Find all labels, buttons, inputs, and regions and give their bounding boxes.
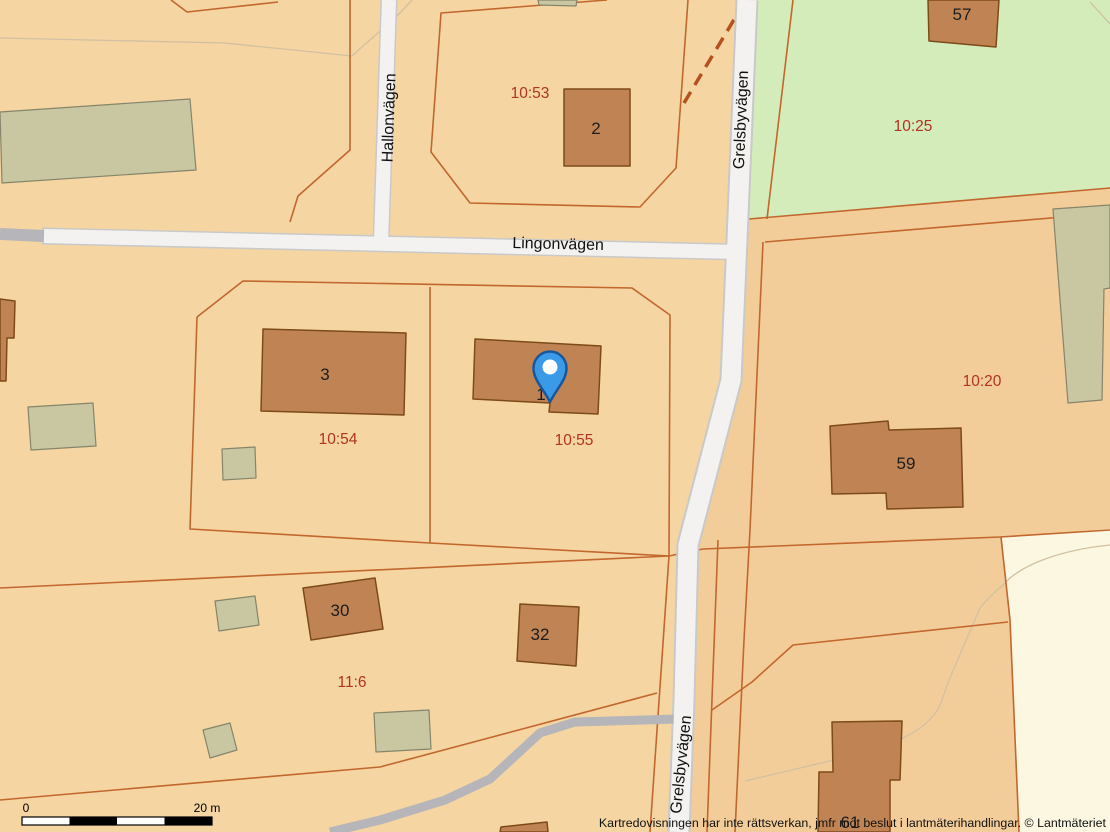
- scale-max-label: 20 m: [194, 801, 221, 815]
- parcel-label-10-20: 10:20: [963, 373, 1002, 390]
- building-2-label: 2: [591, 119, 600, 138]
- outbuilding: [28, 403, 96, 450]
- map-canvas[interactable]: 2 3 1 57 59 30 32 61 Hallonvägen Lingonv…: [0, 0, 1110, 832]
- street-label-lingonvagen: Lingonvägen: [512, 235, 604, 254]
- attribution-text: Kartredovisningen har inte rättsverkan, …: [599, 816, 1107, 830]
- map-viewport[interactable]: 2 3 1 57 59 30 32 61 Hallonvägen Lingonv…: [0, 0, 1110, 832]
- parcel-label-10-25: 10:25: [894, 118, 933, 135]
- building-3-footprint: [261, 329, 406, 415]
- building-3-label: 3: [320, 365, 329, 384]
- pin-center-dot: [543, 360, 558, 375]
- parcel-label-10-53: 10:53: [511, 85, 550, 102]
- scale-zero-label: 0: [23, 801, 30, 815]
- outbuilding: [222, 447, 256, 480]
- building-30-label: 30: [331, 601, 350, 620]
- outbuilding: [538, 0, 577, 6]
- outbuilding: [215, 596, 259, 631]
- parcel-label-11-6: 11:6: [337, 674, 366, 691]
- parcel-label-10-54: 10:54: [319, 431, 358, 448]
- building-32-label: 32: [531, 625, 550, 644]
- parcel-label-10-55: 10:55: [555, 432, 594, 449]
- building-59-label: 59: [897, 454, 916, 473]
- outbuilding: [374, 710, 431, 752]
- building-57-label: 57: [953, 5, 972, 24]
- street-label-hallonvagen: Hallonvägen: [379, 73, 399, 162]
- outbuilding: [0, 99, 196, 183]
